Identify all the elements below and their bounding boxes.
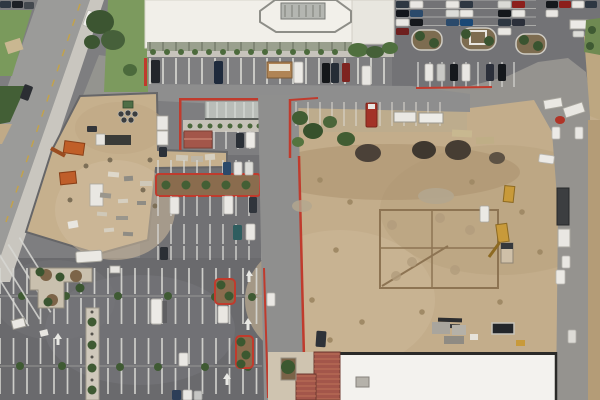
material-stack bbox=[124, 176, 133, 182]
staging-pad bbox=[444, 336, 464, 344]
parked-van bbox=[179, 353, 188, 366]
vehicle-shadow bbox=[162, 301, 167, 323]
flatbed-truck-cab bbox=[96, 134, 105, 145]
gravel-patch bbox=[292, 200, 312, 212]
parked-van bbox=[294, 62, 303, 83]
parked-car bbox=[462, 64, 470, 81]
orange-machine bbox=[59, 171, 76, 185]
parked-car bbox=[446, 19, 459, 26]
material-stack bbox=[137, 201, 146, 205]
parked-car bbox=[498, 1, 511, 8]
box-truck bbox=[157, 131, 168, 145]
red-curb-line bbox=[416, 87, 492, 88]
shrub bbox=[292, 137, 304, 147]
parked-van bbox=[224, 196, 233, 214]
aerial-scene bbox=[0, 0, 600, 400]
parked-car bbox=[223, 162, 231, 175]
planter-tree bbox=[281, 360, 295, 374]
tree bbox=[123, 64, 137, 76]
mulch-pile bbox=[355, 144, 381, 162]
mulch-pile bbox=[445, 140, 471, 160]
red-curb bbox=[179, 98, 267, 101]
parked-car bbox=[246, 132, 255, 148]
parked-car bbox=[410, 10, 423, 17]
parked-car bbox=[512, 1, 525, 8]
pickup-truck bbox=[480, 206, 489, 222]
rv-motorhome bbox=[151, 299, 162, 324]
storage-trailer bbox=[394, 112, 416, 122]
material-stack bbox=[140, 181, 152, 186]
parked-car bbox=[151, 60, 160, 83]
red-curb bbox=[179, 98, 182, 150]
gravel-patch bbox=[418, 188, 454, 204]
box-trailer bbox=[558, 229, 570, 247]
car-on-road bbox=[562, 256, 570, 268]
material-stack bbox=[97, 212, 107, 217]
parked-car bbox=[546, 1, 558, 8]
mulch-pile bbox=[412, 141, 436, 159]
tree bbox=[101, 30, 125, 50]
parked-car bbox=[425, 64, 433, 81]
parked-car bbox=[183, 390, 192, 400]
parked-car bbox=[437, 64, 445, 81]
parked-car bbox=[172, 390, 181, 400]
parked-van bbox=[218, 306, 228, 323]
parked-car bbox=[160, 247, 168, 260]
parked-car bbox=[249, 197, 257, 213]
excavator-body bbox=[63, 141, 84, 156]
white-equipment bbox=[470, 334, 478, 340]
parked-car bbox=[460, 1, 473, 8]
box-truck bbox=[157, 116, 168, 130]
steel-beams bbox=[438, 318, 462, 323]
pallet-row bbox=[176, 155, 188, 162]
wheel-loader bbox=[503, 186, 515, 203]
parked-car bbox=[396, 10, 409, 17]
tree bbox=[323, 116, 337, 128]
parked-car bbox=[410, 19, 423, 26]
parked-car bbox=[236, 133, 244, 148]
parked-car bbox=[159, 147, 167, 157]
delivery-van bbox=[76, 250, 103, 263]
car-on-road bbox=[575, 127, 583, 139]
bush-cluster bbox=[348, 43, 368, 57]
excavator bbox=[496, 223, 509, 242]
mulch-pile bbox=[489, 152, 505, 164]
parked-car bbox=[460, 19, 473, 26]
parked-car bbox=[498, 28, 511, 35]
cart-return bbox=[110, 266, 120, 273]
red-curb bbox=[144, 58, 147, 86]
parked-car bbox=[396, 19, 409, 26]
car-on-road bbox=[556, 270, 565, 284]
tree bbox=[303, 123, 323, 139]
car-on-road bbox=[568, 330, 576, 343]
south-building-roof bbox=[336, 352, 557, 400]
parked-car bbox=[585, 1, 597, 8]
tree bbox=[337, 132, 355, 146]
car-on-road bbox=[267, 293, 275, 306]
material-stack bbox=[123, 232, 133, 237]
material-stack bbox=[116, 216, 128, 220]
pad-building-roof bbox=[205, 101, 263, 120]
parked-car bbox=[322, 63, 330, 83]
parked-car bbox=[559, 1, 571, 8]
lumber-stack bbox=[476, 137, 494, 145]
parked-car bbox=[342, 63, 350, 82]
parked-car bbox=[446, 1, 459, 8]
bush-cluster bbox=[366, 46, 384, 58]
rooftop-vent-unit bbox=[281, 3, 325, 19]
parked-car bbox=[331, 63, 339, 83]
parked-car bbox=[234, 162, 242, 175]
parked-car bbox=[572, 1, 584, 8]
red-truck-cab bbox=[368, 104, 375, 109]
staging-pad bbox=[432, 322, 450, 334]
rooftop-hvac bbox=[356, 377, 369, 387]
parked-car bbox=[362, 66, 371, 85]
dumpster bbox=[123, 101, 133, 108]
parked-car bbox=[396, 1, 409, 8]
parked-car bbox=[450, 64, 458, 81]
parked-car bbox=[24, 2, 34, 9]
parked-car bbox=[233, 225, 242, 240]
tree bbox=[84, 35, 100, 49]
parked-car bbox=[512, 10, 525, 17]
aerial-photo-viewport bbox=[0, 0, 600, 400]
car-on-road bbox=[552, 127, 560, 139]
parked-car bbox=[573, 31, 584, 37]
parked-car bbox=[486, 64, 494, 81]
pad-roof-shadow bbox=[205, 118, 263, 120]
parked-car bbox=[396, 28, 409, 35]
material-stack bbox=[118, 199, 128, 204]
flatbed-truck-cab bbox=[501, 243, 513, 249]
parked-car bbox=[170, 197, 179, 214]
equipment-trailer-dark bbox=[492, 323, 514, 334]
dark-truck bbox=[315, 331, 326, 348]
parked-car bbox=[498, 19, 511, 26]
red-car bbox=[555, 116, 565, 124]
parked-car bbox=[498, 10, 511, 17]
lumber-stack bbox=[452, 129, 472, 137]
parked-car bbox=[446, 10, 459, 17]
parked-car bbox=[546, 10, 558, 17]
parked-car bbox=[0, 1, 11, 8]
roadside-dirt bbox=[588, 120, 600, 400]
parked-car bbox=[460, 10, 473, 17]
material-stack bbox=[108, 172, 119, 178]
parked-car bbox=[12, 1, 23, 8]
parked-car bbox=[512, 19, 525, 26]
semi-trailer bbox=[557, 188, 569, 225]
parked-car bbox=[498, 64, 506, 81]
parked-car bbox=[245, 162, 253, 175]
parked-car bbox=[214, 61, 223, 84]
yellow-equipment bbox=[516, 340, 525, 346]
flatbed-truck-bed bbox=[105, 135, 131, 145]
car-on-road bbox=[539, 154, 555, 164]
pallet-row bbox=[205, 154, 215, 161]
work-van bbox=[87, 126, 97, 132]
storage-trailer bbox=[419, 113, 443, 123]
bush-cluster bbox=[382, 42, 398, 54]
parked-car bbox=[194, 391, 202, 400]
staging-pad bbox=[452, 325, 466, 335]
parked-van bbox=[246, 224, 255, 240]
parked-car bbox=[410, 1, 423, 8]
retail-building-annex-roof bbox=[352, 0, 394, 44]
equipment-trailer-top bbox=[269, 64, 290, 71]
tree bbox=[292, 111, 308, 125]
